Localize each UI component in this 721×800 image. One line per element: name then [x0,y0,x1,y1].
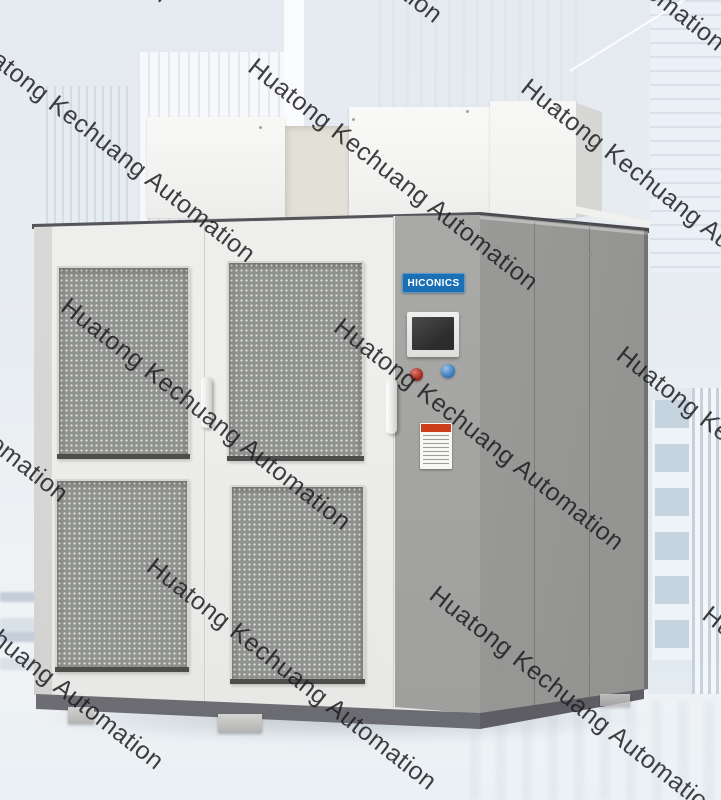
mesh-panel [227,261,364,461]
top-duct-right-box [349,107,490,218]
building-windows [652,400,692,660]
mesh-panel-frame [55,667,189,672]
cabinet-foot [218,714,262,732]
screw [352,118,355,121]
screw [589,655,592,658]
hmi-display [407,312,459,357]
brand-logo-label: HICONICS [407,278,459,289]
screw [497,246,500,249]
building-column [284,0,304,132]
building-stripes [692,388,721,694]
screw [640,257,643,260]
top-duct-corner-box [490,101,576,218]
door-handle [201,377,212,428]
mesh-panel [55,479,189,672]
mesh-panel-frame [227,456,364,461]
screw [259,126,262,129]
warning-label-text-lines [423,435,449,466]
top-duct-recessed-panel [285,126,349,218]
warning-label-header [421,424,451,432]
side-panel-seam [589,227,590,697]
red-pushbutton [410,368,423,381]
door-seam [393,216,395,708]
screw [497,668,500,671]
warning-label [420,423,452,469]
mesh-panel-frame [57,454,190,459]
screw [466,110,469,113]
building-silhouette-right-top [650,0,721,272]
side-panel-seam [534,222,535,706]
screw [589,253,592,256]
cabinet-foot [600,694,630,706]
building-silhouette-right-bottom [648,388,721,694]
top-duct-left-box [147,117,285,218]
mesh-panel [230,485,365,684]
cabinet-foot [68,707,94,723]
product-photo: HICONICS Huatong Kechuang AutomationHuat… [0,0,721,800]
door-seam [204,222,206,702]
mesh-panel [57,266,190,459]
door-handle [386,379,397,434]
hmi-screen [412,317,454,350]
screw [533,249,536,252]
blue-pushbutton [441,364,455,378]
screw [556,106,559,109]
mesh-panel-frame [230,679,365,684]
brand-logo: HICONICS [402,273,465,293]
